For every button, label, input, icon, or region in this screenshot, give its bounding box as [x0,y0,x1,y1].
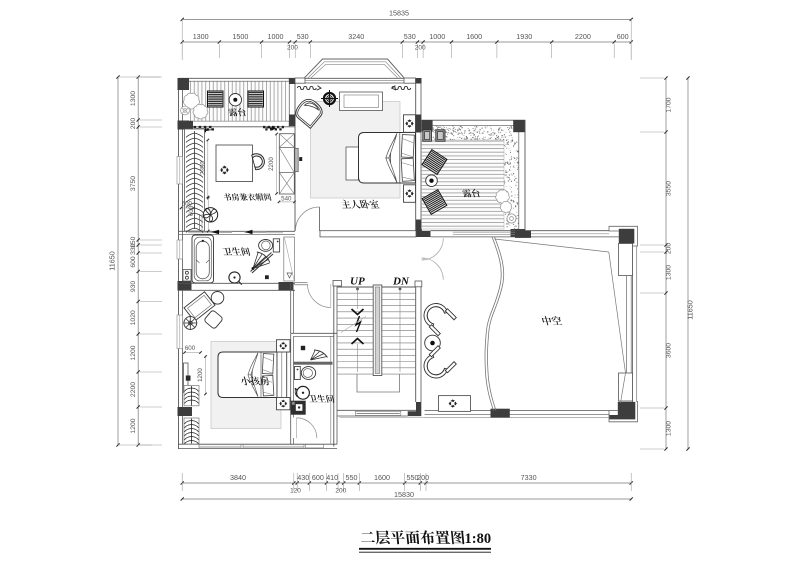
svg-text:1000: 1000 [268,32,284,41]
svg-text:1020: 1020 [130,310,137,325]
svg-text:430: 430 [297,473,309,482]
svg-text:600: 600 [188,205,195,216]
svg-text:1200: 1200 [130,345,137,360]
svg-text:1200: 1200 [130,418,137,433]
svg-text:600: 600 [617,32,629,41]
svg-text:1300: 1300 [666,265,673,280]
svg-text:410: 410 [326,473,338,482]
svg-text:2200: 2200 [268,157,275,171]
svg-text:1700: 1700 [666,97,673,112]
svg-text:15835: 15835 [389,9,409,18]
svg-text:1600: 1600 [466,32,482,41]
svg-text:330: 330 [130,243,137,255]
svg-text:200: 200 [417,473,429,482]
svg-text:7330: 7330 [521,473,537,482]
svg-text:600: 600 [312,473,324,482]
svg-text:550: 550 [346,473,358,482]
svg-text:2200: 2200 [575,32,591,41]
svg-text:1300: 1300 [193,32,209,41]
svg-text:200: 200 [415,44,426,51]
svg-text:200: 200 [130,118,137,130]
svg-text:1600: 1600 [374,473,390,482]
svg-text:530: 530 [297,32,309,41]
svg-text:3550: 3550 [666,181,673,196]
svg-text:DN: DN [392,276,410,288]
svg-text:120: 120 [290,488,301,495]
svg-text:3840: 3840 [230,473,246,482]
svg-text:3600: 3600 [666,343,673,358]
svg-text:3750: 3750 [130,176,137,191]
svg-text:530: 530 [404,32,416,41]
svg-text:200: 200 [287,44,298,51]
svg-text:540: 540 [281,195,292,202]
svg-text:1300: 1300 [666,421,673,436]
svg-text:1930: 1930 [516,32,532,41]
svg-text:1300: 1300 [130,91,137,106]
svg-text:2350: 2350 [200,161,207,175]
svg-text:1200: 1200 [197,368,204,382]
svg-text:930: 930 [130,281,137,293]
svg-text:UP: UP [350,276,365,288]
svg-text:200: 200 [335,488,346,495]
svg-text:200: 200 [666,243,673,255]
svg-text:2200: 2200 [130,382,137,397]
svg-text:15830: 15830 [394,490,414,499]
svg-text:1:80: 1:80 [465,531,492,547]
svg-text:11650: 11650 [686,300,695,319]
svg-text:600: 600 [185,345,196,352]
svg-text:600: 600 [130,256,137,268]
svg-text:1000: 1000 [429,32,445,41]
svg-text:1500: 1500 [232,32,248,41]
svg-text:3240: 3240 [348,32,364,41]
svg-text:11650: 11650 [108,251,117,270]
